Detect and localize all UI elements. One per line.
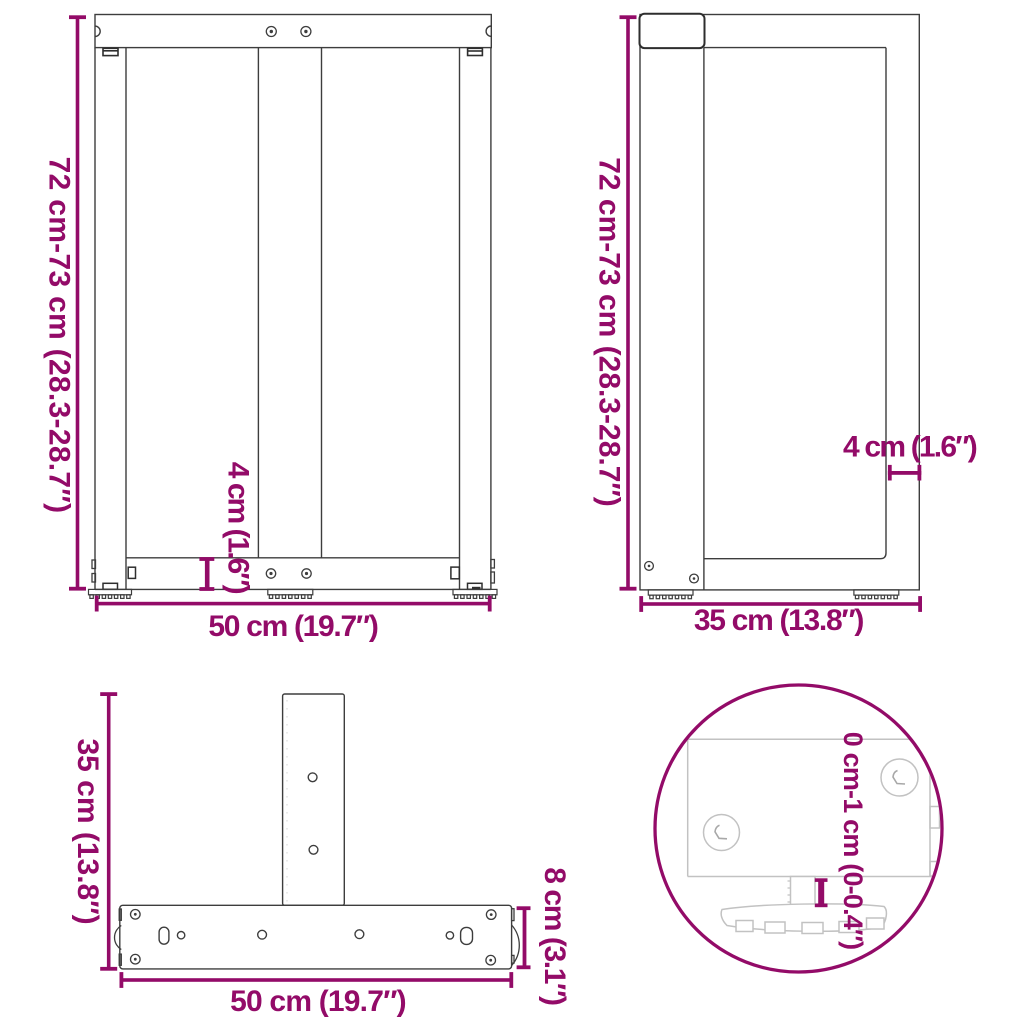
- svg-text:4 cm (1.6″): 4 cm (1.6″): [221, 462, 254, 594]
- svg-text:72 cm-73 cm (28.3-28.7″): 72 cm-73 cm (28.3-28.7″): [42, 157, 75, 514]
- svg-text:50 cm (19.7″): 50 cm (19.7″): [230, 985, 406, 1018]
- svg-text:35 cm (13.8″): 35 cm (13.8″): [694, 604, 864, 637]
- svg-text:4 cm (1.6″): 4 cm (1.6″): [843, 431, 977, 464]
- svg-text:50 cm (19.7″): 50 cm (19.7″): [208, 610, 378, 643]
- svg-text:0 cm-1 cm (0-0.4″): 0 cm-1 cm (0-0.4″): [838, 732, 868, 950]
- svg-text:72 cm-73 cm (28.3-28.7″): 72 cm-73 cm (28.3-28.7″): [592, 157, 625, 507]
- svg-text:35 cm (13.8″): 35 cm (13.8″): [71, 738, 104, 924]
- svg-text:8 cm (3.1″): 8 cm (3.1″): [538, 867, 571, 1005]
